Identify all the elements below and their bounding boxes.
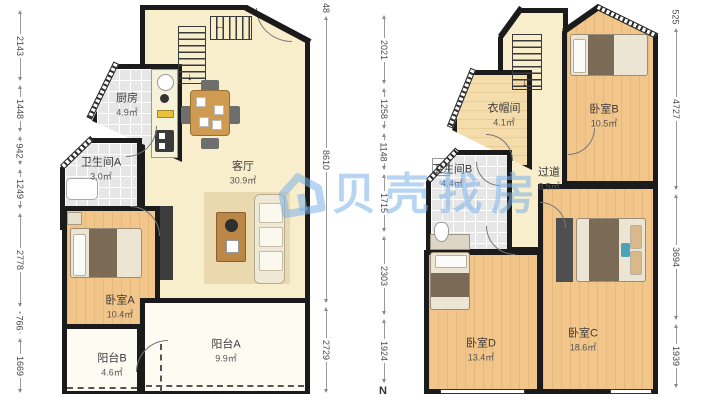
room-label-bedroomA: 卧室A10.4㎡ <box>105 292 134 321</box>
dimension-f2-right: 4727 <box>670 26 682 192</box>
room-label-bedroomC: 卧室C18.6㎡ <box>568 325 598 354</box>
dimension-f2-left: 1148 <box>378 131 390 172</box>
floorplan-canvas: ↓ ← <box>0 0 710 400</box>
dimension-f2-right: 3694 <box>670 192 682 322</box>
window-balconyA-open <box>146 385 304 387</box>
kitchen-sink <box>157 74 174 91</box>
dimension-f2-left: 1715 <box>378 172 390 234</box>
toilet-bathroomB <box>434 222 449 242</box>
dimension-f1-right: 8610 <box>320 14 332 305</box>
dimension-f1-left: 1669 <box>14 336 26 395</box>
room-label-bedroomB: 卧室B10.5㎡ <box>589 101 618 130</box>
room-label-hallway: 过道8.5㎡ <box>538 164 560 193</box>
window-bedroomD-bottom <box>440 389 525 394</box>
dimension-f1-right: 2729 <box>320 305 332 395</box>
room-label-bathroomB: 卫生间B4.4㎡ <box>432 161 472 190</box>
tv-cabinet <box>160 206 173 280</box>
dimension-f2-right: 1939 <box>670 322 682 390</box>
bed-bedroomC <box>576 218 646 282</box>
window-balconyB-open <box>67 387 137 389</box>
dining-chair <box>201 138 219 149</box>
room-label-balconyA: 阳台A9.9㎡ <box>211 336 240 365</box>
door-threshold-dash <box>160 344 162 392</box>
dining-chair <box>229 106 240 124</box>
stairs-down-arrow-icon: ↓ <box>522 78 528 89</box>
room-label-living: 客厅30.9㎡ <box>230 158 257 187</box>
dimension-f1-left: 942 <box>14 134 26 167</box>
dimension-f1-left: 766 <box>14 309 26 336</box>
bed-bedroomB <box>570 34 648 76</box>
room-label-bathroomA: 卫生间A3.0㎡ <box>81 154 121 183</box>
dimension-f2-right: 525 <box>670 8 682 26</box>
room-label-cloakroom: 衣帽间4.1㎡ <box>488 100 521 129</box>
dimension-f2-left: 1258 <box>378 86 390 131</box>
room-label-kitchen: 厨房4.9㎡ <box>116 90 138 119</box>
dimension-f1-left: 1249 <box>14 167 26 211</box>
kitchen-stove <box>155 130 174 152</box>
sofa <box>254 194 285 284</box>
north-indicator: N <box>379 385 387 397</box>
room-label-bedroomD: 卧室D13.4㎡ <box>466 335 496 364</box>
stairs-down-arrow-icon: ↓ <box>187 72 193 83</box>
window-bedroomC-bottom <box>610 389 652 394</box>
bed-bedroomD <box>430 252 470 310</box>
dimension-f2-left: 1924 <box>378 317 390 385</box>
coffee-table <box>216 212 246 262</box>
room-label-balconyB: 阳台B4.6㎡ <box>97 350 126 379</box>
nightstand <box>67 212 82 225</box>
kitchen-counter <box>151 69 178 158</box>
dimension-f2-left: 2021 <box>378 13 390 86</box>
dimension-f1-left: 1448 <box>14 83 26 134</box>
dimension-f1-left: 2143 <box>14 8 26 83</box>
dimension-f1-right: 48 <box>320 2 332 14</box>
dimension-f1-left: 2778 <box>14 211 26 309</box>
dimension-f2-left: 2303 <box>378 234 390 317</box>
dining-table <box>190 90 230 136</box>
stairs-left-arrow-icon: ← <box>214 21 225 32</box>
